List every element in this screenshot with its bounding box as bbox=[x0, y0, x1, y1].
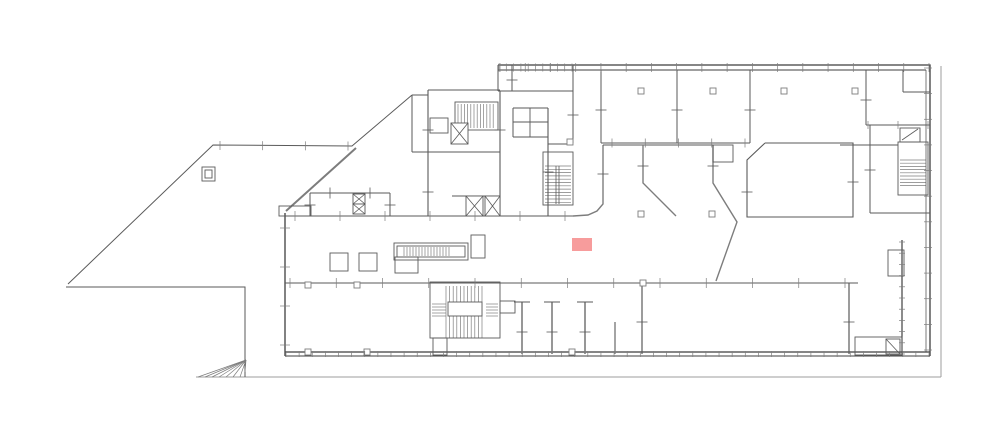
floor-plan-viewport bbox=[0, 0, 1000, 448]
columns bbox=[305, 88, 858, 355]
fixtures bbox=[202, 102, 928, 355]
highlight-marker[interactable] bbox=[572, 238, 592, 251]
ramp-fan bbox=[198, 360, 246, 377]
elevator-shafts bbox=[353, 123, 500, 216]
floor-plan-drawing bbox=[0, 0, 1000, 448]
wall-hatching bbox=[220, 63, 932, 357]
walls bbox=[66, 65, 941, 377]
